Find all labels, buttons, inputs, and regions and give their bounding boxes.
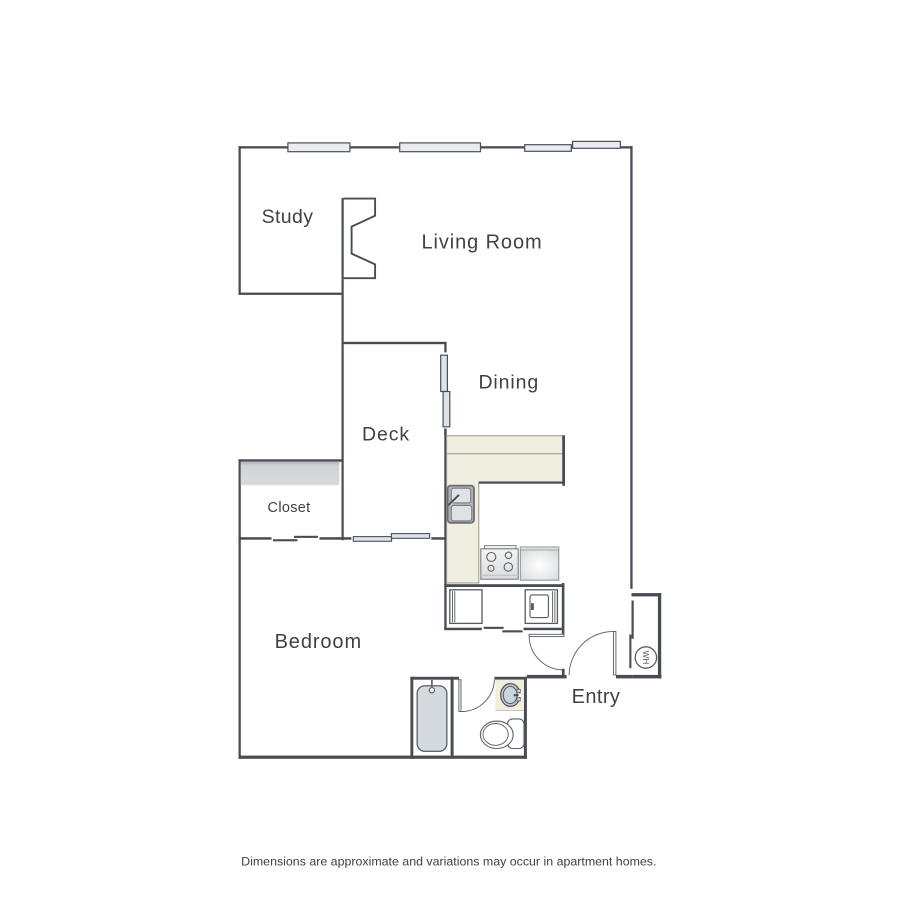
svg-text:Dining: Dining	[478, 371, 539, 393]
svg-text:Living Room: Living Room	[421, 232, 542, 254]
svg-text:Entry: Entry	[572, 686, 621, 708]
svg-text:Deck: Deck	[362, 424, 410, 446]
svg-text:Closet: Closet	[268, 500, 311, 516]
svg-text:Dimensions are approximate and: Dimensions are approximate and variation…	[241, 855, 656, 869]
svg-text:Bedroom: Bedroom	[275, 631, 362, 653]
svg-text:WH: WH	[641, 651, 650, 665]
svg-text:Study: Study	[262, 206, 314, 228]
